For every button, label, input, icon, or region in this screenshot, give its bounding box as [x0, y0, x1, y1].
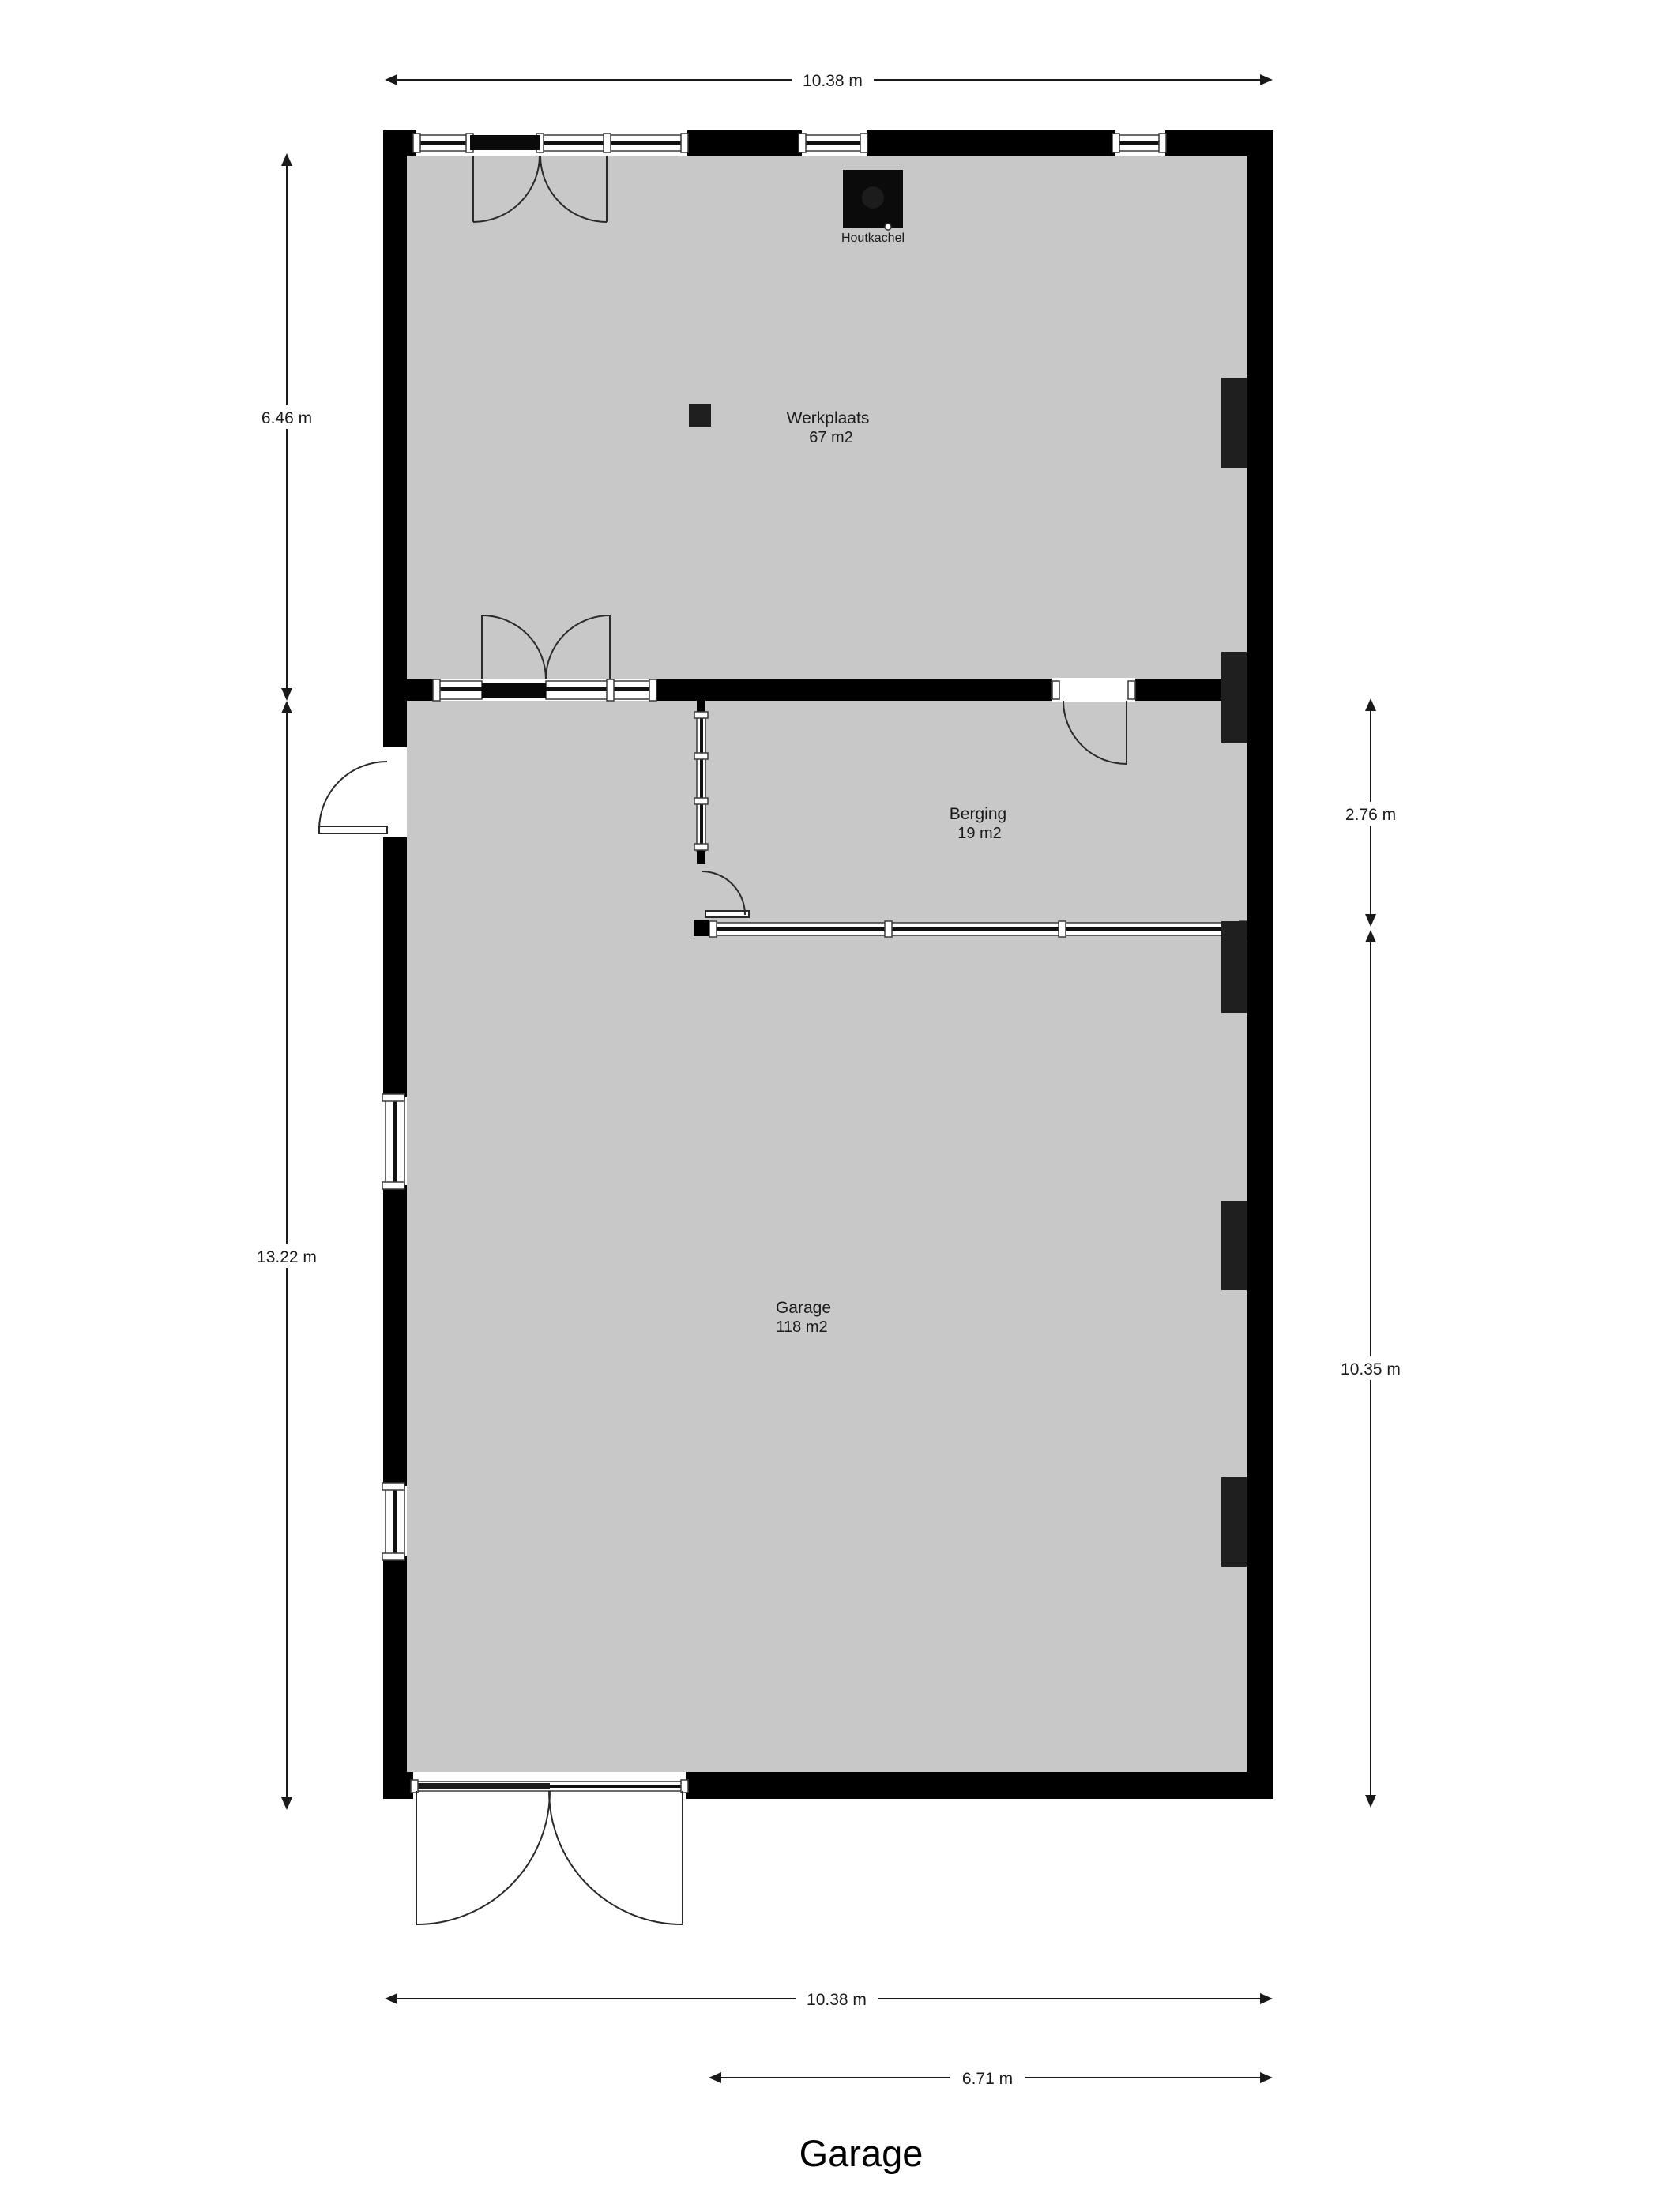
left-wall-mid2 — [383, 1185, 407, 1486]
dim-left-upper-label: 6.46 m — [261, 409, 312, 427]
houtkachel-stove — [843, 170, 903, 230]
window — [413, 134, 473, 152]
dim-bottom-full-label: 10.38 m — [807, 1991, 867, 2009]
garage-name: Garage — [776, 1299, 831, 1317]
dim-right-upper-label: 2.76 m — [1345, 806, 1396, 824]
stove-knob — [885, 224, 891, 230]
partition-stub-bottom — [697, 851, 705, 864]
top-wall-seg3 — [1165, 130, 1273, 156]
dim-top-label: 10.38 m — [803, 72, 863, 90]
window — [382, 1094, 404, 1189]
top-door-panel — [470, 135, 540, 150]
pilaster — [1221, 378, 1247, 468]
pilaster — [1221, 652, 1247, 743]
pilaster — [1221, 1201, 1247, 1290]
stove-burner — [862, 186, 884, 209]
pilaster — [1221, 921, 1247, 1013]
stove-label: Houtkachel — [841, 231, 905, 245]
left-wall-upper — [383, 130, 407, 747]
middle-wall-seg1 — [407, 679, 436, 701]
pilaster — [1221, 1477, 1247, 1567]
plan-title: Garage — [799, 2132, 924, 2174]
berging-north-door-opening — [1052, 678, 1135, 702]
bottom-wall-right — [686, 1772, 1273, 1799]
middle-door-panel — [482, 683, 546, 698]
window — [536, 134, 688, 152]
floorplan-page: Werkplaats 67 m2 Berging 19 m2 Garage 11… — [0, 0, 1659, 2212]
dim-left-lower-label: 13.22 m — [257, 1248, 317, 1266]
werkplaats-name: Werkplaats — [787, 409, 870, 427]
berging-name: Berging — [950, 805, 1006, 823]
garage-area: 118 m2 — [776, 1319, 827, 1336]
top-wall-seg2 — [867, 130, 1115, 156]
middle-wall-seg2 — [653, 679, 1052, 701]
left-wall-lower — [383, 1556, 407, 1799]
partition-corner-block — [694, 920, 709, 936]
werkplaats-area: 67 m2 — [809, 429, 853, 446]
dim-bottom-partial-label: 6.71 m — [962, 2070, 1013, 2088]
top-wall-seg1 — [687, 130, 802, 156]
window — [799, 134, 867, 152]
right-wall — [1247, 130, 1273, 1799]
left-wall-mid1 — [383, 837, 407, 1097]
bottom-wall-left-stub — [383, 1772, 413, 1799]
werkplaats-column — [689, 404, 711, 427]
top-left-corner-block — [383, 130, 416, 156]
berging-bottom-window-wall — [709, 921, 1247, 937]
berging-area: 19 m2 — [957, 825, 1002, 842]
window — [382, 1483, 404, 1560]
window — [1112, 134, 1166, 152]
garage-door-panel — [413, 1783, 550, 1789]
dim-right-lower-label: 10.35 m — [1341, 1360, 1401, 1379]
floorplan-svg: Werkplaats 67 m2 Berging 19 m2 Garage 11… — [0, 0, 1659, 2212]
